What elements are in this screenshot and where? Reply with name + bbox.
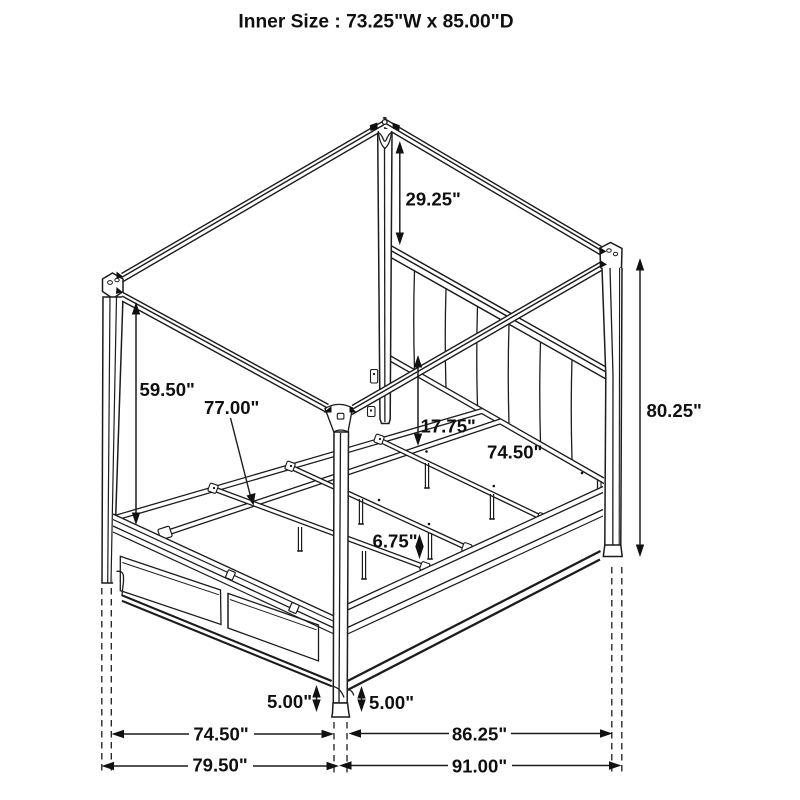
- svg-text:17.75": 17.75": [421, 416, 476, 437]
- svg-text:74.50": 74.50": [487, 442, 542, 463]
- svg-text:5.00": 5.00": [369, 692, 414, 713]
- svg-text:77.00": 77.00": [204, 397, 259, 418]
- svg-text:79.50": 79.50": [192, 755, 247, 776]
- svg-text:Inner Size : 73.25"W x 85.00"D: Inner Size : 73.25"W x 85.00"D: [238, 12, 513, 33]
- svg-text:74.50": 74.50": [193, 724, 248, 745]
- svg-text:29.25": 29.25": [406, 189, 461, 210]
- svg-text:91.00": 91.00": [452, 756, 507, 777]
- svg-text:59.50": 59.50": [140, 379, 195, 400]
- svg-text:86.25": 86.25": [452, 724, 507, 745]
- svg-text:5.00": 5.00": [267, 691, 312, 712]
- svg-text:6.75": 6.75": [373, 531, 418, 552]
- svg-text:80.25": 80.25": [647, 400, 702, 421]
